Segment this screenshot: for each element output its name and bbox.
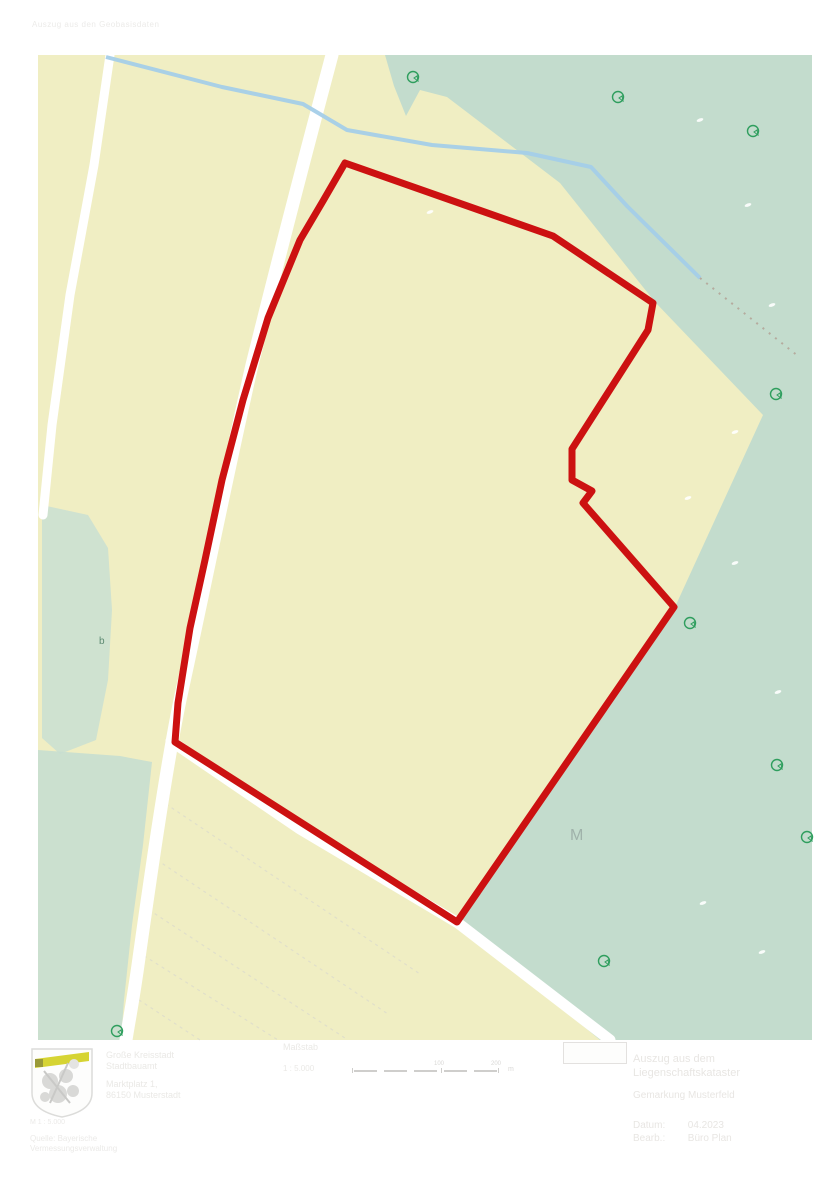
scale-segment: [474, 1070, 497, 1072]
scale-tick: [441, 1068, 442, 1073]
scale-segment: [384, 1070, 407, 1072]
note-line: Quelle: Bayerische: [30, 1134, 117, 1144]
project-meta: Datum: 04.2023 Bearb.: Büro Plan: [633, 1119, 740, 1145]
project-meta-row: Bearb.: Büro Plan: [633, 1132, 740, 1145]
cadastral-map: M b: [0, 0, 836, 1181]
scale-segment: [414, 1070, 437, 1072]
scale-tick-number: 200: [491, 1061, 501, 1067]
scale-tick-number: 100: [434, 1061, 444, 1067]
note-line: Vermessungsverwaltung: [30, 1144, 117, 1154]
map-label-b: b: [99, 636, 105, 647]
note-line: M 1 : 5.000: [30, 1118, 117, 1128]
crest-band-accent: [35, 1059, 43, 1067]
project-block: Auszug aus dem Liegenschaftskataster Gem…: [633, 1052, 740, 1145]
scale-label: Maßstab: [283, 1042, 543, 1052]
scale-unit: m: [508, 1066, 514, 1073]
map-label-m: M: [570, 827, 583, 844]
scale-tick: [498, 1068, 499, 1073]
source-note-block: M 1 : 5.000 Quelle: Bayerische Vermessun…: [30, 1118, 117, 1154]
scale-bar: 100 200 m: [352, 1068, 500, 1072]
issuer-line: Marktplatz 1,: [106, 1079, 181, 1090]
plan-document-page: { "page": { "faint_header": "Auszug aus …: [0, 0, 836, 1181]
meta-label: Datum:: [633, 1119, 685, 1132]
scale-row: 1 : 5.000 100 200 m: [283, 1062, 543, 1076]
scale-tick: [352, 1068, 353, 1073]
issuer-line: Große Kreisstadt: [106, 1050, 181, 1061]
project-subtitle: Gemarkung Musterfeld: [633, 1090, 740, 1101]
coat-of-arms: [30, 1047, 94, 1119]
meta-value: Büro Plan: [688, 1133, 732, 1144]
project-title-line: Liegenschaftskataster: [633, 1066, 740, 1080]
scale-block: Maßstab 1 : 5.000 100 200 m: [283, 1042, 543, 1052]
meta-value: 04.2023: [688, 1120, 724, 1131]
meta-label: Bearb.:: [633, 1132, 685, 1145]
issuer-line: Stadtbauamt: [106, 1061, 181, 1072]
project-meta-row: Datum: 04.2023: [633, 1119, 740, 1132]
scale-value: 1 : 5.000: [283, 1064, 314, 1073]
legend-box: [563, 1042, 627, 1064]
scale-segment: [354, 1070, 377, 1072]
issuer-block: Große Kreisstadt Stadtbauamt Marktplatz …: [106, 1050, 181, 1108]
project-title-line: Auszug aus dem: [633, 1052, 740, 1066]
scale-segment: [444, 1070, 467, 1072]
issuer-line: 86150 Musterstadt: [106, 1090, 181, 1101]
